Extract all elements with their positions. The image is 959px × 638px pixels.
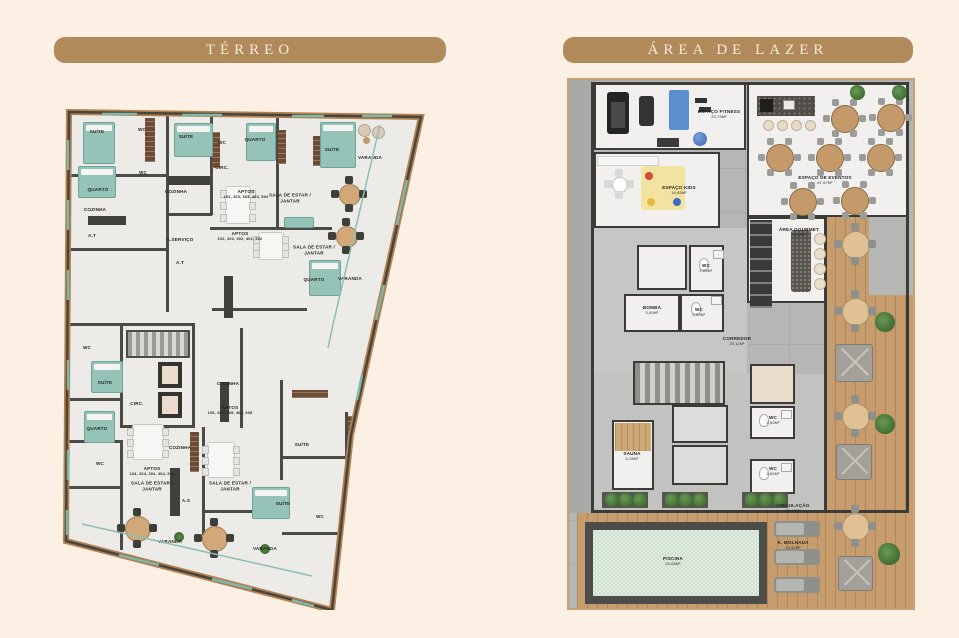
room-label: PISCINA24,06M² — [663, 556, 683, 566]
room-label: WC2,60M² — [766, 466, 779, 476]
room-label: WC2,50M² — [766, 415, 779, 425]
room-label: BOMBA3,00M² — [643, 305, 661, 315]
room-label: CIRCULAÇÃO27,46M² — [777, 503, 810, 513]
room-label: SAUNA5,15M² — [623, 451, 640, 461]
room-label: ESPAÇO KIDS16,85M² — [662, 185, 696, 195]
room-label: WC2,05M² — [699, 263, 712, 273]
terreo-banner: TÉRREO — [54, 37, 446, 63]
lazer-title: ÁREA DE LAZER — [648, 42, 829, 59]
room-label: ÁREA GOURMET15,45M² — [779, 227, 819, 237]
terreo-outline — [62, 80, 432, 610]
brochure-page: TÉRREO ÁREA DE LAZER SUÍTEWCSUÍTEWCQUART… — [0, 0, 959, 638]
room-label: ESPAÇO DE EVENTOS67,67M² — [798, 175, 851, 185]
room-label: CORREDOR20,11M² — [723, 336, 751, 346]
room-label: ESPAÇO FITNESS23,73M² — [698, 109, 741, 119]
balcony-glass-lines — [82, 125, 380, 576]
room-label: WC2,90M² — [692, 307, 705, 317]
terreo-title: TÉRREO — [206, 42, 294, 59]
floor-plan-lazer: ESPAÇO FITNESS23,73M²ESPAÇO KIDS16,85M²E… — [567, 78, 915, 610]
floor-plan-terreo: SUÍTEWCSUÍTEWCQUARTOSUÍTEVARANDAQUARTOWC… — [62, 80, 432, 610]
room-label: Á. MOLHADA13,52M² — [777, 540, 808, 550]
lazer-banner: ÁREA DE LAZER — [563, 37, 913, 63]
